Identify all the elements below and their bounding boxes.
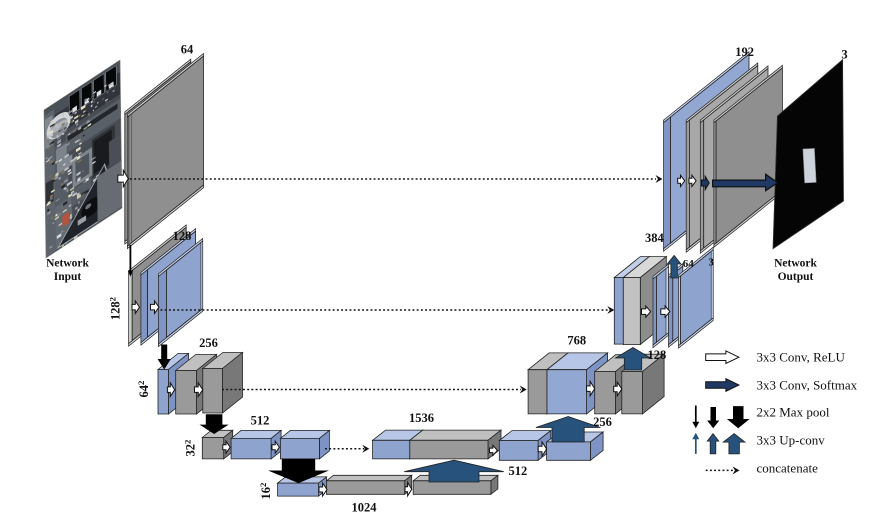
svg-text:512: 512 — [251, 414, 270, 428]
svg-text:384: 384 — [645, 231, 665, 245]
svg-text:256: 256 — [199, 336, 218, 350]
svg-text:Input: Input — [54, 271, 82, 283]
svg-text:3x3 Up-conv: 3x3 Up-conv — [757, 433, 826, 448]
svg-text:2x2 Max pool: 2x2 Max pool — [757, 405, 830, 420]
svg-text:768: 768 — [567, 334, 586, 348]
svg-text:128: 128 — [648, 348, 667, 362]
svg-text:512: 512 — [509, 464, 528, 478]
svg-text:128: 128 — [173, 229, 192, 243]
svg-text:3: 3 — [708, 257, 714, 269]
svg-text:256: 256 — [593, 415, 612, 429]
svg-text:Network: Network — [46, 258, 89, 270]
svg-text:Network: Network — [774, 258, 817, 270]
svg-text:64: 64 — [683, 258, 695, 270]
svg-text:1536: 1536 — [409, 411, 434, 425]
svg-text:concatenate: concatenate — [757, 461, 819, 476]
svg-text:3x3 Conv, ReLU: 3x3 Conv, ReLU — [757, 350, 846, 365]
svg-text:1024: 1024 — [352, 501, 378, 515]
svg-text:192: 192 — [735, 45, 754, 59]
svg-text:64: 64 — [181, 43, 194, 57]
svg-text:Output: Output — [778, 271, 814, 283]
svg-text:3: 3 — [841, 47, 847, 61]
svg-text:3x3 Conv, Softmax: 3x3 Conv, Softmax — [757, 378, 858, 393]
